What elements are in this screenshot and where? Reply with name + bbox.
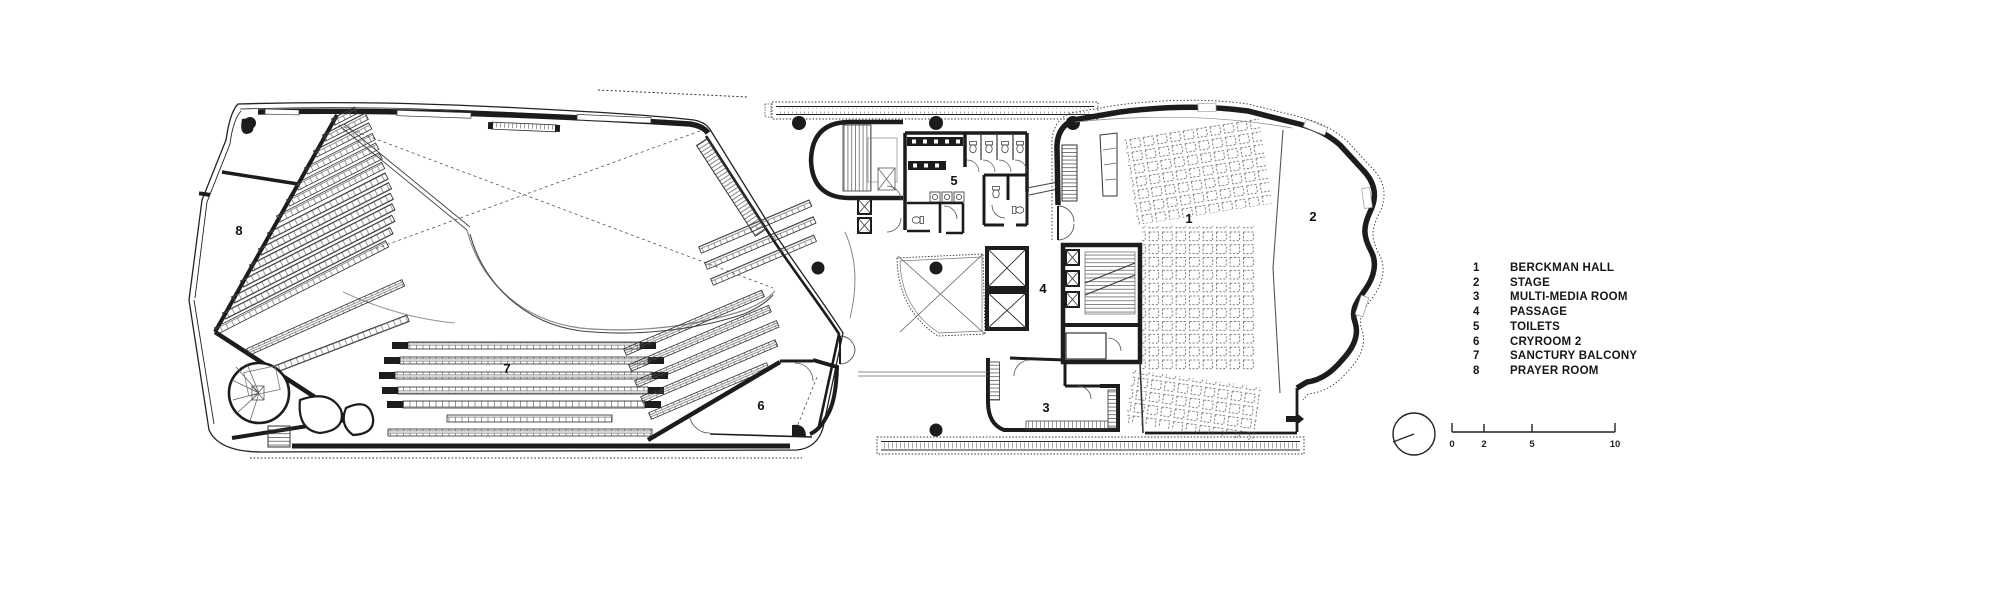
legend-item: 8PRAYER ROOM [1470, 364, 1637, 379]
toilets [905, 133, 1058, 233]
legend-item: 5TOILETS [1470, 320, 1637, 335]
elevator-shaft [858, 218, 871, 233]
passage-elevators [987, 248, 1027, 329]
column [792, 116, 806, 130]
organic-wall-1 [300, 396, 342, 433]
multimedia-room [858, 358, 1118, 430]
legend-item: 3MULTI-MEDIA ROOM [1470, 290, 1637, 305]
column [244, 117, 256, 129]
legend-label: SANCTURY BALCONY [1510, 349, 1637, 364]
legend-number: 5 [1470, 320, 1510, 335]
legend-label: STAGE [1510, 276, 1550, 291]
legend-label: MULTI-MEDIA ROOM [1510, 290, 1628, 305]
hall-west-stair [1062, 145, 1077, 201]
exit-arrow-icon [1286, 413, 1304, 426]
scale-tick-10: 10 [1610, 439, 1621, 450]
legend-label: TOILETS [1510, 320, 1560, 335]
room-label-passage: 4 [1039, 281, 1047, 296]
scale-bar: 0 2 5 10 [1449, 423, 1620, 450]
scale-tick-2: 2 [1481, 439, 1486, 450]
hall-seating-middle [1141, 226, 1256, 372]
legend-label: BERCKMAN HALL [1510, 261, 1614, 276]
room-label-toilets: 5 [950, 173, 957, 188]
legend-label: PRAYER ROOM [1510, 364, 1599, 379]
passage-void [897, 254, 985, 336]
legend-number: 6 [1470, 335, 1510, 350]
bottom-walkway-strip [877, 437, 1304, 454]
legend-number: 3 [1470, 290, 1510, 305]
north-arrow-icon [1393, 413, 1435, 455]
legend-number: 4 [1470, 305, 1510, 320]
left-building-sanctuary-balcony [189, 90, 855, 458]
legend-item: 2STAGE [1470, 276, 1637, 291]
room-legend: 1BERCKMAN HALL 2STAGE 3MULTI-MEDIA ROOM … [1470, 261, 1637, 379]
legend-number: 8 [1470, 364, 1510, 379]
organic-wall-2 [344, 404, 374, 435]
hall-seating-upper [1124, 117, 1272, 225]
legend-label: CRYROOM 2 [1510, 335, 1581, 350]
legend-item: 1BERCKMAN HALL [1470, 261, 1637, 276]
floor-plan-drawing: 1 2 3 4 5 6 7 8 0 2 5 10 [0, 0, 2000, 597]
column [930, 424, 943, 437]
legend-number: 7 [1470, 349, 1510, 364]
hall-entry-double-door [1058, 206, 1074, 240]
balcony-lobby-double-door [840, 336, 855, 364]
room-label-multimedia: 3 [1042, 400, 1049, 415]
room-label-stage: 2 [1309, 209, 1316, 224]
scale-tick-5: 5 [1529, 439, 1535, 450]
room-label-cryroom: 6 [757, 398, 764, 413]
room-label-balcony: 7 [503, 361, 510, 376]
legend-item: 7SANCTURY BALCONY [1470, 349, 1637, 364]
room-label-prayer-room: 8 [235, 223, 242, 238]
room-label-berckman-hall: 1 [1185, 211, 1192, 226]
stage-edge-line [1273, 130, 1283, 393]
scale-tick-0: 0 [1449, 439, 1454, 450]
column [929, 116, 943, 130]
hall-seating-lower [1125, 369, 1261, 441]
sinks [930, 192, 964, 202]
legend-number: 1 [1470, 261, 1510, 276]
architectural-floor-plan-page: 1 2 3 4 5 6 7 8 0 2 5 10 1BERCKMAN HALL … [0, 0, 2000, 597]
main-stair-enclosure [811, 122, 903, 198]
column [812, 262, 825, 275]
legend-item: 4PASSAGE [1470, 305, 1637, 320]
elevator-shaft [858, 199, 871, 214]
spiral-stair [229, 363, 289, 423]
legend-item: 6CRYROOM 2 [1470, 335, 1637, 350]
exit-stair [268, 426, 290, 447]
legend-label: PASSAGE [1510, 305, 1567, 320]
top-walkway-strip [765, 102, 1098, 119]
legend-number: 2 [1470, 276, 1510, 291]
